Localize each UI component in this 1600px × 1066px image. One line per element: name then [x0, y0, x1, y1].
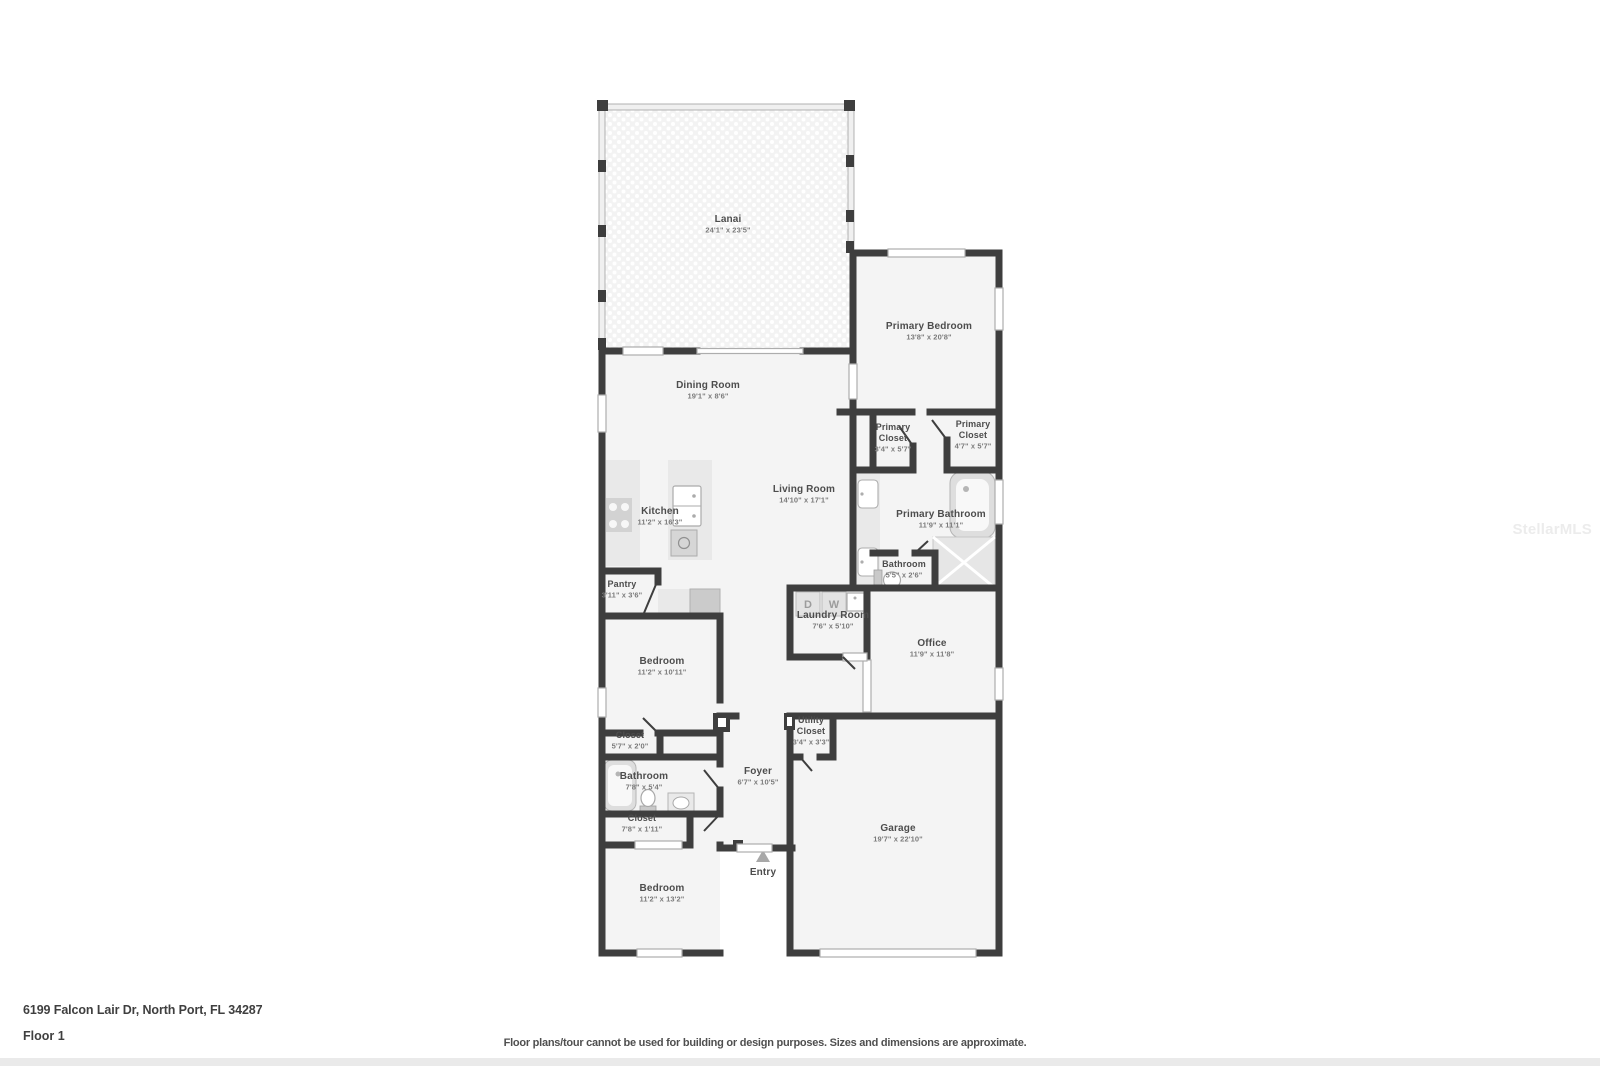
- faucet-dot: [860, 492, 863, 495]
- window: [623, 347, 663, 355]
- floor-plan-svg: Lanai24'1" x 23'5"Dining Room19'1" x 8'6…: [0, 0, 1600, 1066]
- door-opening: [849, 364, 857, 399]
- floor-plan-page: Lanai24'1" x 23'5"Dining Room19'1" x 8'6…: [0, 0, 1600, 1066]
- dishwasher-icon: [671, 530, 697, 556]
- room-label-primary-closet-right: PrimaryCloset4'7" x 5'7": [955, 419, 992, 451]
- entry-threshold: [737, 844, 772, 852]
- window: [598, 395, 606, 432]
- tub-drain: [963, 486, 969, 492]
- sliding-closet-door: [635, 841, 682, 849]
- address-label: 6199 Falcon Lair Dr, North Port, FL 3428…: [23, 1003, 263, 1017]
- room-label-living-room: Living Room14'10" x 17'1": [773, 484, 835, 505]
- bathroom-sink-icon: [668, 793, 694, 813]
- room-label-bedroom-1: Bedroom11'2" x 10'11": [638, 656, 687, 677]
- fridge-icon: [690, 589, 720, 614]
- sliding-door: [697, 349, 803, 354]
- window: [995, 288, 1003, 330]
- room-label-kitchen: Kitchen11'2" x 16'3": [638, 506, 683, 527]
- door-jamb-inner: [718, 718, 726, 727]
- window: [598, 688, 606, 717]
- room-label-entry: Entry: [750, 867, 777, 878]
- dryer-letter: D: [804, 599, 812, 611]
- kitchen-counter-bottom: [658, 589, 690, 614]
- window: [888, 249, 965, 257]
- window: [637, 949, 682, 957]
- window: [995, 668, 1003, 700]
- room-label-garage: Garage19'7" x 22'10": [873, 823, 923, 844]
- room-label-bedroom-2: Bedroom11'2" x 13'2": [640, 883, 685, 904]
- screen-wall-top: [605, 104, 847, 110]
- screen-wall-right: [848, 107, 854, 250]
- shower-icon: [933, 537, 995, 588]
- house-fill-right: [853, 253, 999, 953]
- stellar-mls-watermark: StellarMLS: [1512, 521, 1592, 538]
- room-label-primary-closet-left: PrimaryCloset3'4" x 5'7": [875, 422, 912, 454]
- washer-letter: W: [829, 599, 840, 611]
- faucet-dot: [854, 597, 857, 600]
- window: [995, 480, 1003, 524]
- stove-icon: [606, 498, 632, 532]
- faucet-dot: [860, 560, 863, 563]
- room-label-bathroom-2: Bathroom7'8" x 5'4": [620, 771, 668, 792]
- laundry-sink-icon: [847, 593, 864, 611]
- toilet-icon: [640, 790, 656, 814]
- disclaimer-text: Floor plans/tour cannot be used for buil…: [440, 1037, 1090, 1049]
- door-opening: [863, 660, 871, 712]
- house-fill-left: [602, 351, 853, 953]
- garage-door: [820, 949, 976, 957]
- bottom-bar: [0, 1058, 1600, 1066]
- faucet-dot: [692, 514, 696, 518]
- door-jamb-inner: [787, 717, 792, 726]
- floor-label: Floor 1: [23, 1029, 65, 1043]
- faucet-dot: [692, 494, 696, 498]
